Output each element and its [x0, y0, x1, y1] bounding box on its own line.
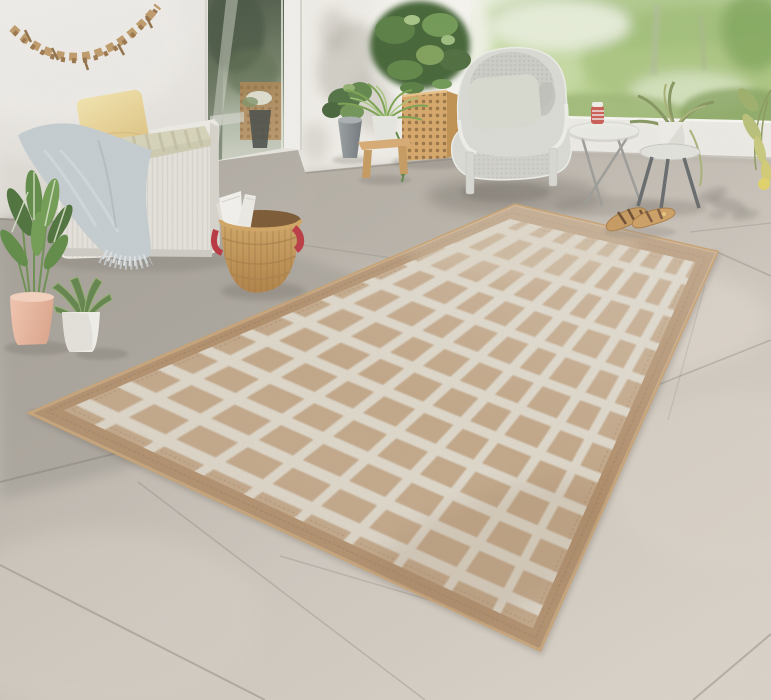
sandal-buckle: [662, 212, 666, 216]
patio-photo: [0, 0, 771, 700]
gray-pot-rim: [338, 117, 362, 124]
table-top: [569, 122, 639, 140]
lemon: [758, 178, 770, 190]
patio-scene: [0, 0, 771, 700]
chair-leg-right: [549, 148, 557, 186]
white-pot-shade: [62, 312, 93, 352]
chair-back-cushion: [468, 73, 542, 131]
stool-table-top: [640, 144, 700, 160]
door-frame: [284, 0, 302, 152]
chair-leg-left: [466, 152, 474, 194]
candle-lid: [592, 102, 603, 107]
pink-pot-rim: [10, 292, 54, 302]
planter-lattice: [402, 91, 447, 161]
pink-pot: [10, 296, 54, 345]
